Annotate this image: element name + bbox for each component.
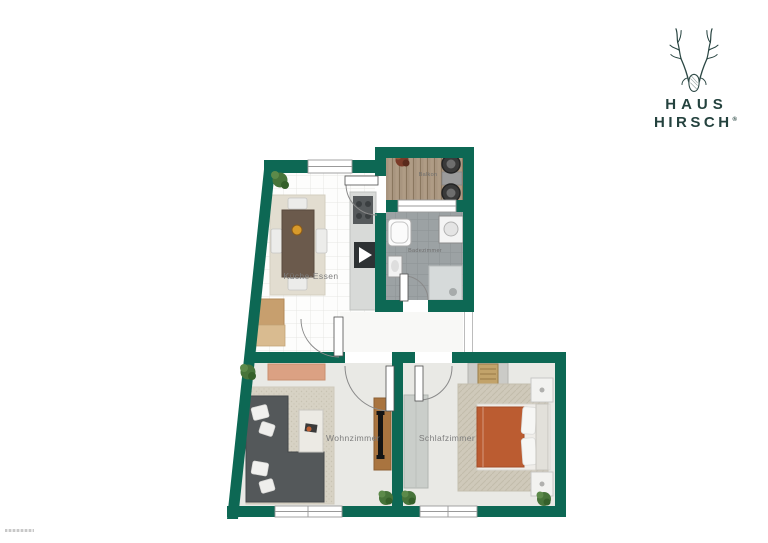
dining-chair: [288, 198, 307, 209]
headboard: [536, 404, 548, 470]
shower: [429, 266, 462, 300]
burner: [365, 201, 371, 207]
bath-sink-bowl: [391, 260, 399, 272]
window-kitchen: [308, 160, 352, 173]
room-label-kitchen: Küche-Essen: [284, 271, 339, 281]
shower-drain: [449, 288, 457, 296]
nightstand-knob: [540, 388, 545, 393]
wall-kitchen-right: [375, 147, 386, 176]
wall-kitchen-top: [264, 160, 308, 173]
wall-bottom: [477, 506, 566, 517]
dining-chair: [316, 229, 327, 253]
dining-table: [282, 210, 314, 277]
door-leaf: [345, 176, 378, 185]
wall-bottom: [227, 506, 275, 517]
registered-mark: ®: [733, 117, 737, 123]
dresser-decor: [478, 364, 498, 386]
nightstand-knob: [540, 482, 545, 487]
balcony-chair-seat: [447, 189, 456, 198]
bed-duvet: [477, 407, 524, 467]
balcony-chair-seat: [447, 160, 456, 169]
door-leaf: [415, 366, 423, 401]
wall-rooms-top: [248, 352, 345, 363]
window-balcony-bath: [398, 200, 456, 212]
window-living-room: [275, 506, 342, 517]
room-label-living: Wohnzimmer: [326, 433, 380, 443]
tv: [377, 455, 385, 459]
table-centerpiece: [292, 225, 302, 235]
entry-opening: [463, 312, 474, 352]
brand-logo: HAUS HIRSCH®: [636, 22, 752, 131]
room-label-balcony: Balkon: [419, 172, 438, 178]
door-leaf: [334, 317, 343, 356]
wall-kitchen-right: [375, 213, 386, 312]
wall-bath-bottom: [386, 300, 403, 312]
stove: [353, 196, 373, 224]
wall-bottom: [342, 506, 420, 517]
wall-balcony-bath-sep: [386, 200, 398, 212]
fine-print: [5, 529, 34, 532]
sofa-pillow: [251, 461, 269, 477]
logo-text-hirsch: HIRSCH®: [636, 114, 752, 131]
corridor-floor: [340, 312, 474, 352]
door-leaf: [386, 366, 394, 411]
burner: [356, 201, 362, 207]
bed-pillow: [521, 438, 537, 466]
wall-balcony-top: [375, 147, 474, 158]
burner: [356, 213, 362, 219]
room-label-bedroom: Schlafzimmer: [419, 433, 475, 443]
bed-pillow: [521, 407, 537, 435]
sideboard: [268, 364, 325, 380]
floor-plan-page: Küche-Essen Balkon Badezimmer Wohnzimmer…: [0, 0, 768, 543]
logo-text-haus: HAUS: [636, 96, 752, 113]
wall-bath-bottom: [428, 300, 474, 312]
wall-bedroom-right: [555, 352, 566, 517]
balcony-table: [442, 172, 462, 185]
coffee-table-bowl: [307, 427, 312, 432]
tv: [377, 411, 385, 415]
dining-chair: [271, 229, 282, 253]
washing-machine-door: [444, 222, 458, 236]
stag-antlers-icon: [661, 22, 727, 94]
wall-rooms-top: [452, 352, 566, 363]
kitchen-desk-lower: [254, 325, 285, 346]
door-leaf: [400, 274, 408, 301]
window-bedroom: [420, 506, 477, 517]
wall-east: [463, 147, 474, 312]
room-label-bathroom: Badezimmer: [408, 248, 442, 254]
wall-balcony-bath-sep: [456, 200, 463, 212]
